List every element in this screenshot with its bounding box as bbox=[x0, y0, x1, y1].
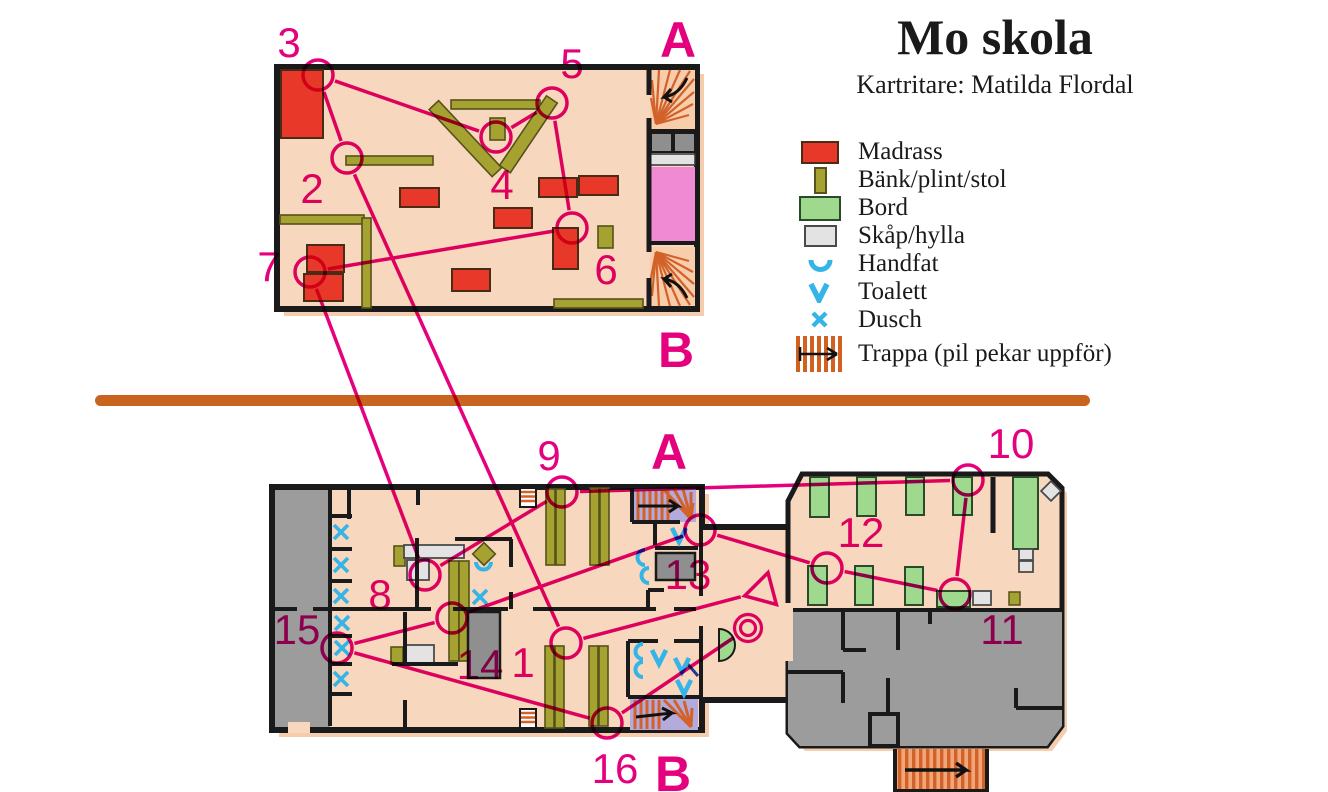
dusch-icon bbox=[782, 310, 858, 330]
toalett-icon bbox=[782, 281, 858, 303]
control-number-4: 4 bbox=[490, 161, 513, 208]
legend-label: Bänk/plint/stol bbox=[858, 167, 1007, 193]
legend-row-trappa: Trappa (pil pekar uppför) bbox=[782, 334, 1212, 374]
control-number-1: 1 bbox=[511, 639, 534, 686]
map-header: Mo skola Kartritare: Matilda Flordal bbox=[780, 8, 1210, 100]
legend-row-dusch: Dusch bbox=[782, 306, 1212, 334]
legend-row-toalett: Toalett bbox=[782, 278, 1212, 306]
control-number-15: 15 bbox=[274, 606, 321, 653]
stairs-icon bbox=[782, 334, 858, 374]
legend-row-madrass: Madrass bbox=[782, 138, 1212, 166]
skap bbox=[674, 133, 695, 152]
legend-label: Bord bbox=[858, 195, 908, 221]
legend-label: Handfat bbox=[858, 251, 939, 277]
bench-icon bbox=[782, 167, 858, 194]
control-number-10: 10 bbox=[988, 420, 1035, 467]
legend-row-handfat: Handfat bbox=[782, 250, 1212, 278]
legend-row-skap: Skåp/hylla bbox=[782, 222, 1212, 250]
legend-label: Dusch bbox=[858, 307, 922, 333]
control-number-6: 6 bbox=[594, 246, 617, 293]
control-number-2: 2 bbox=[300, 165, 323, 212]
page-title: Mo skola bbox=[780, 8, 1210, 66]
map-author: Kartritare: Matilda Flordal bbox=[780, 70, 1210, 100]
control-number-13: 13 bbox=[665, 551, 712, 598]
handfat-icon bbox=[782, 255, 858, 273]
legend-label: Skåp/hylla bbox=[858, 223, 965, 249]
madrass-icon bbox=[782, 141, 858, 164]
control-number-12: 12 bbox=[838, 509, 885, 556]
lift-shaft bbox=[650, 167, 695, 241]
control-number-7: 7 bbox=[257, 243, 280, 290]
table-icon bbox=[782, 196, 858, 221]
stair-letter-B: B bbox=[658, 322, 694, 378]
skap bbox=[651, 133, 672, 152]
legend-row-bord: Bord bbox=[782, 194, 1212, 222]
legend-row-bank: Bänk/plint/stol bbox=[782, 166, 1212, 194]
control-number-3: 3 bbox=[277, 19, 300, 66]
shelf bbox=[650, 154, 695, 165]
control-number-5: 5 bbox=[560, 40, 583, 87]
legend-label: Trappa (pil pekar uppför) bbox=[858, 341, 1112, 367]
legend: Madrass Bänk/plint/stol Bord Skåp/hylla … bbox=[782, 138, 1212, 374]
control-number-11: 11 bbox=[980, 606, 1024, 653]
floor-divider-bar bbox=[95, 395, 1090, 406]
legend-label: Toalett bbox=[858, 279, 927, 305]
legend-label: Madrass bbox=[858, 139, 943, 165]
control-number-14: 14 bbox=[457, 641, 504, 688]
control-number-8: 8 bbox=[368, 571, 391, 618]
bench-annex bbox=[1009, 592, 1020, 605]
stair-letter-B: B bbox=[655, 746, 691, 792]
stair-letter-A: A bbox=[660, 12, 696, 68]
control-number-9: 9 bbox=[537, 432, 560, 479]
orienteering-map: 12345678910111213141516ABAB bbox=[0, 0, 1328, 792]
cabinet-icon bbox=[782, 225, 858, 247]
stair-letter-A: A bbox=[651, 424, 687, 480]
control-number-16: 16 bbox=[592, 745, 639, 792]
